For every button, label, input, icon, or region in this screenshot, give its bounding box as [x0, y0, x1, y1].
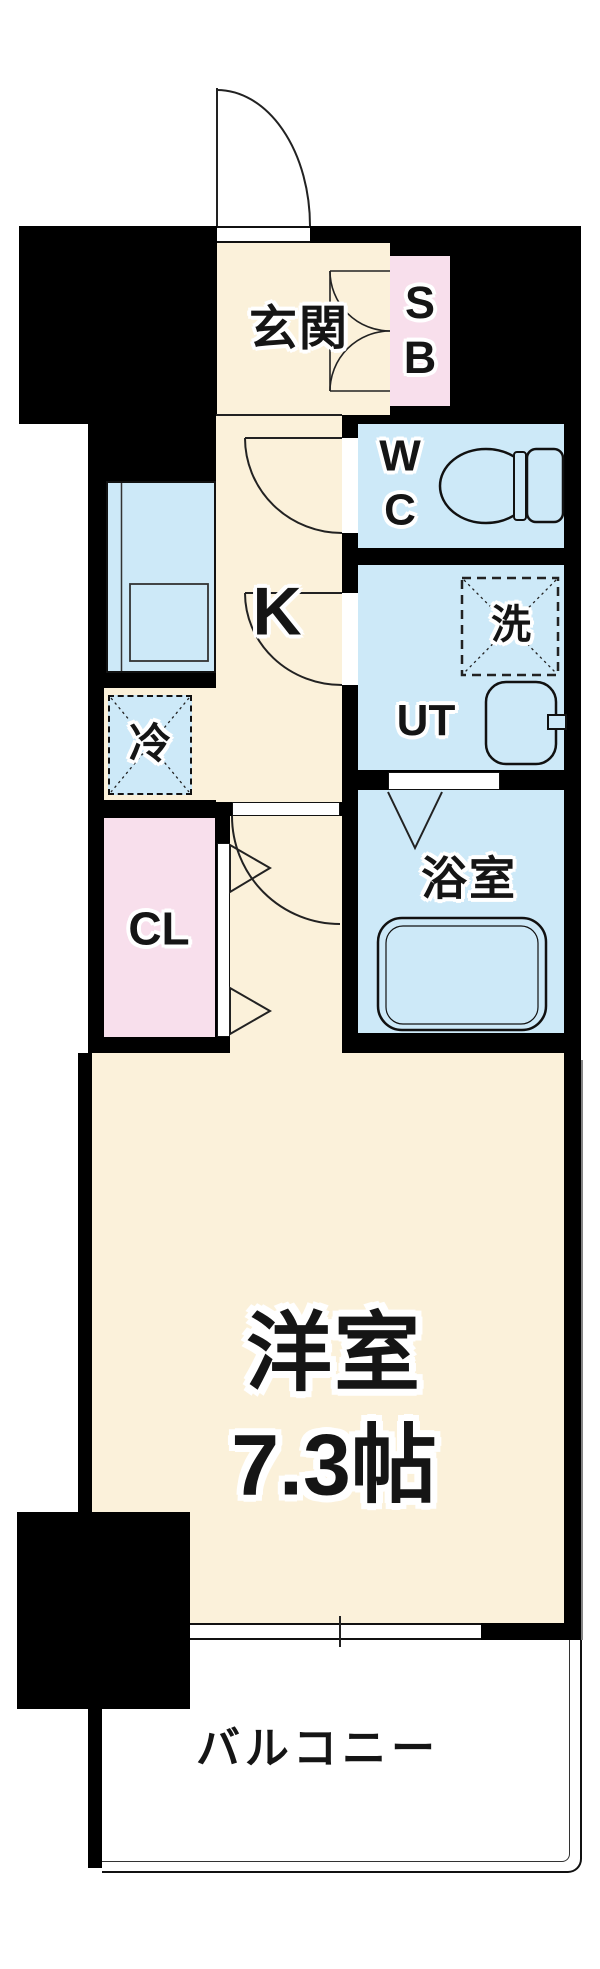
label-main-room-name: 洋室 [246, 1307, 422, 1402]
window [190, 1623, 481, 1640]
pillar [17, 1512, 190, 1709]
label-main-room-size: 7.3帖 [231, 1419, 437, 1514]
label-washer: 洗 [491, 603, 531, 647]
closet-door [217, 843, 230, 1037]
label-fridge: 冷 [129, 721, 171, 767]
balcony-wall-bar [88, 1709, 102, 1868]
wc-line2: C [379, 483, 421, 537]
label-wc: W C [379, 429, 421, 536]
hallway-room-notch [230, 816, 342, 1053]
kitchen-counter [106, 481, 216, 673]
shoe-box-line1: S [404, 276, 437, 331]
room-bath [358, 790, 564, 1033]
label-bath: 浴室 [421, 854, 517, 905]
entrance-threshold [217, 226, 310, 243]
label-kitchen: K [252, 575, 301, 650]
floor-plan: 玄関 S B W C K 洗 UT 冷 CL 浴室 洋室 7.3帖 バルコニー [0, 0, 600, 1969]
main-room-door-leaf [232, 802, 340, 816]
wc-line1: W [379, 429, 421, 483]
door-gap-wc [342, 438, 358, 533]
shoe-box-line2: B [404, 331, 437, 386]
label-balcony: バルコニー [196, 1725, 440, 1773]
entrance-door-icon [217, 88, 310, 226]
label-ut: UT [397, 697, 456, 745]
label-closet: CL [128, 904, 189, 955]
bath-door [388, 772, 500, 790]
label-genkan: 玄関 [249, 304, 349, 357]
room-ut [358, 565, 564, 770]
label-shoe-box: S B [404, 276, 437, 386]
door-gap-ut [342, 593, 358, 685]
